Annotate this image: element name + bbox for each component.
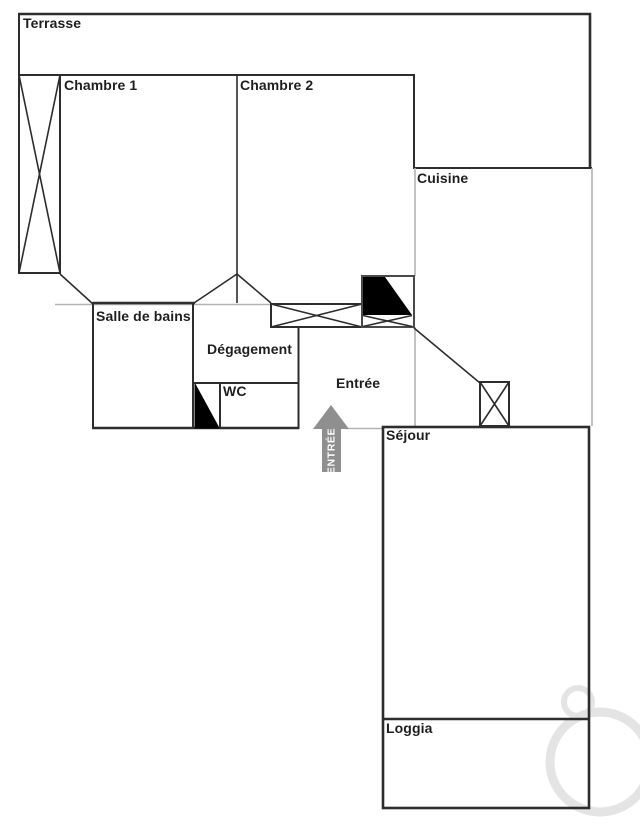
living-room-walls — [383, 427, 589, 808]
door-leaf-wc — [195, 384, 219, 428]
floor-plan: ENTRÉE Terrasse Chambre 1 Chambre 2 Cuis… — [0, 0, 640, 832]
room-label-entree: Entrée — [336, 375, 380, 391]
door-leaf-chambre1 — [194, 274, 237, 303]
room-label-chambre1: Chambre 1 — [64, 77, 137, 93]
room-label-cuisine: Cuisine — [417, 170, 468, 186]
room-label-wc: WC — [223, 383, 247, 399]
entrance-arrow-label: ENTRÉE — [325, 428, 338, 474]
interior-walls — [55, 75, 592, 429]
room-label-degagement: Dégagement — [207, 341, 292, 357]
room-label-loggia: Loggia — [386, 720, 432, 736]
room-label-sejour: Séjour — [386, 427, 430, 443]
entrance-arrow: ENTRÉE — [313, 405, 349, 474]
sejour-outline — [383, 427, 589, 808]
floorplan-canvas: ENTRÉE — [0, 0, 640, 832]
door-leaf-chambre2 — [237, 274, 271, 303]
room-label-chambre2: Chambre 2 — [240, 77, 313, 93]
watermark-circle — [550, 712, 640, 812]
entrance-arrow-head — [313, 405, 349, 429]
room-label-salle-de-bains: Salle de bains — [96, 308, 191, 324]
door-swing-chambre1 — [60, 274, 93, 304]
watermark — [550, 688, 640, 812]
room-label-terrasse: Terrasse — [23, 15, 81, 31]
door-swing-cuisine — [414, 328, 480, 383]
